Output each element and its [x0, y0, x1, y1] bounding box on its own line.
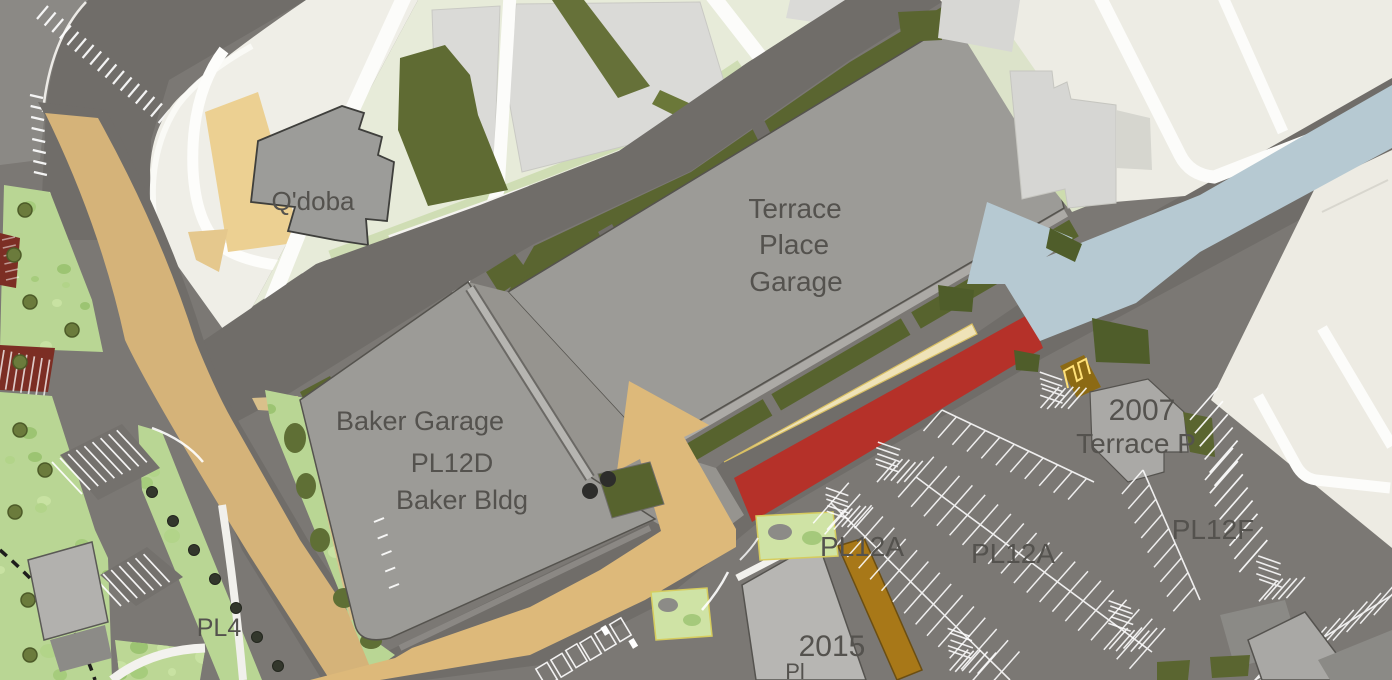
svg-text:Q'doba: Q'doba — [271, 186, 355, 216]
svg-text:2015: 2015 — [799, 630, 866, 663]
svg-text:Place: Place — [759, 229, 829, 260]
svg-text:Baker Garage: Baker Garage — [336, 406, 504, 436]
svg-text:Terrace P: Terrace P — [1076, 428, 1196, 459]
svg-text:PL12D: PL12D — [411, 448, 494, 478]
svg-text:Terrace: Terrace — [748, 193, 841, 224]
svg-text:PL12A: PL12A — [820, 531, 904, 562]
svg-text:PL12F: PL12F — [1172, 514, 1255, 545]
svg-text:PL12A: PL12A — [971, 538, 1055, 569]
svg-text:Baker Bldg: Baker Bldg — [396, 485, 528, 515]
svg-text:2007: 2007 — [1109, 394, 1176, 427]
svg-text:Pl: Pl — [785, 659, 805, 680]
svg-text:PL4: PL4 — [197, 614, 242, 642]
svg-text:Garage: Garage — [749, 266, 842, 297]
